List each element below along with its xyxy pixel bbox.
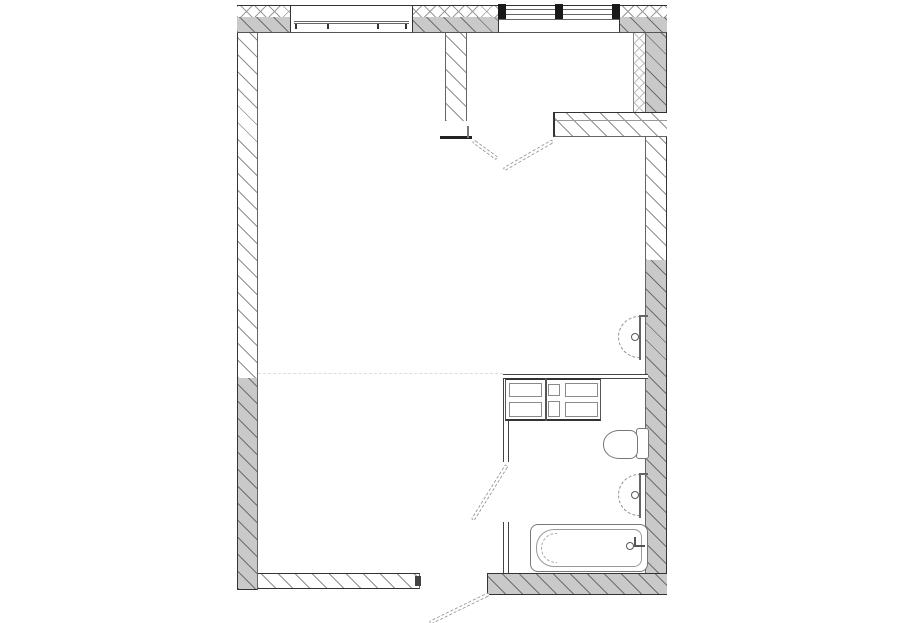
window-left-tick-2 [327, 24, 329, 29]
wash-basin-upper-backline [639, 315, 641, 360]
zone-boundary-dashed-line [258, 373, 503, 374]
cabinet-drawer-1 [509, 383, 542, 397]
hall-left-wall [445, 33, 467, 121]
window-right-glazing-line-3 [499, 19, 619, 20]
window-left-tick-4 [405, 24, 407, 29]
bathroom-partition-vertical-lower [503, 522, 509, 573]
bottom-wall-left [258, 573, 420, 589]
window-right-post-3 [612, 4, 620, 19]
wash-basin-upper-tap [631, 333, 639, 341]
bottom-wall-left-end-cap [415, 576, 421, 586]
wash-basin-lower-tap [631, 491, 639, 499]
hall-door-jamb-tick [467, 126, 469, 138]
cabinet-drawer-5 [548, 401, 560, 417]
hall-right-lining [633, 33, 645, 113]
cabinet-drawer-6 [565, 402, 598, 417]
window-left [290, 5, 413, 33]
hall-bottom-wall [553, 112, 667, 137]
left-wall-lower [237, 378, 258, 590]
hall-bottom-wall-midline [555, 120, 667, 121]
cabinet-drawer-2 [548, 384, 560, 396]
cabinet-drawer-4 [509, 402, 542, 417]
wash-basin-lower-tick-top [639, 473, 648, 475]
entrance-door-leaf [429, 592, 490, 623]
bathroom-door-leaf [471, 464, 509, 521]
wash-basin-upper-tick-top [639, 315, 648, 317]
toilet-bowl [603, 430, 638, 459]
window-right [498, 5, 620, 33]
window-left-tick-3 [377, 24, 379, 29]
kitchen-cabinets-divider [545, 378, 547, 421]
window-right-post-1 [498, 4, 506, 19]
wash-basin-lower-backline [639, 473, 641, 518]
cabinet-drawer-3 [565, 383, 598, 397]
hall-door-leaf-left [472, 139, 499, 160]
window-left-tick-1 [295, 24, 297, 29]
right-wall-light-section [645, 137, 667, 260]
bathtub-faucet [626, 542, 634, 550]
window-right-post-2 [555, 4, 563, 19]
hall-door-leaf-right [503, 139, 554, 171]
floor-plan-canvas [0, 0, 900, 623]
bottom-wall-right [487, 573, 667, 595]
left-wall-upper [237, 33, 258, 378]
window-left-sill [294, 21, 409, 24]
bathtub-faucet-handle [636, 545, 645, 547]
